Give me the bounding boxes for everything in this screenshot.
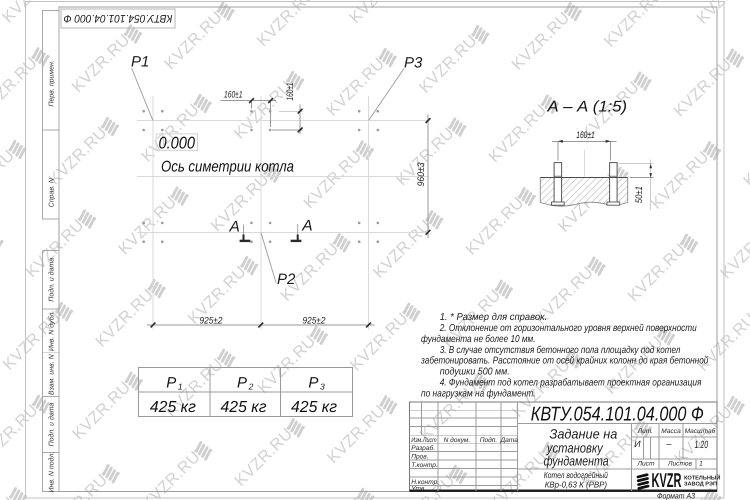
- svg-text:KVZR.RU: KVZR.RU: [139, 448, 204, 500]
- svg-text:Задание на: Задание на: [550, 426, 618, 441]
- svg-text:KVZR.RU: KVZR.RU: [231, 425, 296, 490]
- svg-text:KVZR.RU: KVZR.RU: [693, 0, 750, 28]
- svg-text:1:20: 1:20: [695, 439, 709, 451]
- svg-text:Лист: Лист: [637, 460, 655, 467]
- svg-text:А: А: [229, 218, 240, 235]
- svg-text:подушки 500 мм.: подушки 500 мм.: [440, 366, 510, 377]
- svg-text:Инв. N подл.: Инв. N подл.: [48, 451, 56, 492]
- svg-text:КВТУ.054.101.04.000 Ф: КВТУ.054.101.04.000 Ф: [531, 403, 704, 425]
- svg-text:960±3: 960±3: [416, 162, 427, 187]
- svg-text:KVZR.RU: KVZR.RU: [601, 0, 666, 51]
- svg-text:KVZR.RU: KVZR.RU: [717, 217, 750, 282]
- svg-text:KVZR.RU: KVZR.RU: [647, 148, 712, 213]
- svg-text:925±2: 925±2: [200, 315, 224, 326]
- svg-text:А – А (1:5): А – А (1:5): [546, 99, 627, 116]
- svg-text:КОТЕЛЬНЫЙ: КОТЕЛЬНЫЙ: [684, 473, 720, 481]
- svg-text:KVZR.RU: KVZR.RU: [0, 146, 18, 211]
- svg-text:KVZR.RU: KVZR.RU: [46, 471, 111, 500]
- svg-text:1: 1: [699, 460, 703, 467]
- svg-text:KVZR.RU: KVZR.RU: [462, 194, 527, 259]
- svg-text:4. Фундамент под котел разраба: 4. Фундамент под котел разрабатывает про…: [440, 377, 702, 388]
- svg-text:KVZR.RU: KVZR.RU: [670, 55, 735, 120]
- svg-text:0.000: 0.000: [159, 134, 196, 153]
- svg-text:Р: Р: [166, 374, 176, 391]
- svg-text:Пров.: Пров.: [411, 454, 429, 461]
- svg-text:KVZR.RU: KVZR.RU: [115, 193, 180, 258]
- svg-text:по нагрузкам на фундамент.: по нагрузкам на фундамент.: [421, 388, 536, 399]
- svg-text:Разраб.: Разраб.: [411, 445, 435, 452]
- svg-text:Формат А3: Формат А3: [657, 491, 695, 500]
- svg-text:Масштаб: Масштаб: [685, 428, 716, 435]
- svg-text:KVZR.RU: KVZR.RU: [508, 8, 573, 73]
- svg-text:2: 2: [248, 381, 254, 391]
- svg-text:КВр-0,63 К (РВР): КВр-0,63 К (РВР): [545, 480, 607, 490]
- svg-text:KVZR.RU: KVZR.RU: [346, 0, 411, 27]
- svg-text:А: А: [301, 218, 312, 235]
- svg-text:фундамента: фундамента: [544, 454, 609, 469]
- svg-text:KVZR.RU: KVZR.RU: [0, 54, 41, 119]
- svg-text:KVZR: KVZR: [652, 470, 682, 492]
- svg-text:1. * Размер для справок.: 1. * Размер для справок.: [440, 312, 548, 323]
- svg-text:KVZR.RU: KVZR.RU: [347, 309, 412, 374]
- svg-text:KVZR.RU: KVZR.RU: [68, 31, 133, 96]
- svg-text:Р1: Р1: [131, 54, 149, 71]
- svg-text:KVZR.RU: KVZR.RU: [254, 0, 319, 50]
- svg-text:KVZR.RU: KVZR.RU: [69, 378, 134, 443]
- svg-text:KVZR.RU: KVZR.RU: [300, 147, 365, 212]
- svg-text:Справ. N: Справ. N: [49, 177, 56, 207]
- svg-text:KVZR.RU: KVZR.RU: [0, 401, 42, 466]
- svg-text:КВТУ.054.101.04.000 Ф: КВТУ.054.101.04.000 Ф: [63, 12, 172, 24]
- svg-text:3: 3: [320, 381, 325, 391]
- svg-text:–: –: [665, 439, 672, 449]
- svg-text:3. В случае отсутствия бетонно: 3. В случае отсутствия бетонного пола пл…: [440, 345, 681, 356]
- svg-text:KVZR.RU: KVZR.RU: [485, 101, 550, 166]
- svg-text:И: И: [634, 439, 641, 449]
- svg-text:925±2: 925±2: [303, 315, 327, 326]
- svg-text:160±1: 160±1: [285, 83, 296, 101]
- svg-text:KVZR.RU: KVZR.RU: [439, 0, 504, 4]
- svg-text:Масса: Масса: [661, 428, 681, 435]
- svg-text:Р2: Р2: [277, 271, 296, 288]
- svg-text:ЗАВОД РЭП: ЗАВОД РЭП: [684, 482, 717, 488]
- svg-text:Подп. и дата: Подп. и дата: [48, 258, 56, 302]
- svg-text:50±1: 50±1: [634, 186, 645, 203]
- svg-text:Листов: Листов: [667, 460, 693, 467]
- svg-text:Подп.: Подп.: [480, 437, 498, 444]
- svg-text:Т.контр.: Т.контр.: [411, 462, 438, 469]
- svg-text:KVZR.RU: KVZR.RU: [92, 286, 157, 351]
- svg-text:160±1: 160±1: [224, 90, 243, 101]
- svg-text:Перв. примен.: Перв. примен.: [49, 60, 56, 107]
- svg-text:2. Отклонение от горизонтально: 2. Отклонение от горизонтального уровня …: [439, 323, 697, 334]
- svg-text:425 кг: 425 кг: [150, 399, 196, 416]
- svg-text:забетонировать. Расстояние от: забетонировать. Расстояние от осей крайн…: [420, 356, 709, 367]
- svg-text:Р: Р: [308, 374, 318, 391]
- svg-text:Утв.: Утв.: [410, 485, 426, 492]
- svg-text:KVZR.RU: KVZR.RU: [0, 0, 64, 26]
- svg-text:KVZR.RU: KVZR.RU: [370, 217, 435, 282]
- svg-text:KVZR.RU: KVZR.RU: [741, 472, 750, 500]
- svg-text:Взам. инв. N: Взам. инв. N: [49, 353, 56, 395]
- svg-text:Подп. и дата: Подп. и дата: [48, 402, 56, 446]
- svg-text:Инв. N дубл.: Инв. N дубл.: [48, 311, 56, 352]
- svg-text:KVZR.RU: KVZR.RU: [416, 31, 481, 96]
- svg-text:KVZR.RU: KVZR.RU: [323, 54, 388, 119]
- svg-text:KVZR.RU: KVZR.RU: [301, 494, 366, 500]
- svg-text:Котел водогрейный: Котел водогрейный: [544, 470, 608, 480]
- svg-text:Дата: Дата: [499, 437, 518, 444]
- svg-text:425 кг: 425 кг: [291, 399, 337, 416]
- svg-text:KVZR.RU: KVZR.RU: [624, 240, 689, 305]
- svg-text:KVZR.RU: KVZR.RU: [486, 448, 551, 500]
- svg-text:фундамента не более 10 мм.: фундамента не более 10 мм.: [421, 334, 536, 345]
- svg-text:425 кг: 425 кг: [221, 399, 267, 416]
- svg-text:KVZR.RU: KVZR.RU: [740, 125, 750, 190]
- svg-text:KVZR.RU: KVZR.RU: [208, 170, 273, 235]
- svg-text:Изм.Лист: Изм.Лист: [411, 437, 437, 444]
- svg-text:Р: Р: [237, 374, 247, 391]
- svg-text:Лит.: Лит.: [637, 428, 654, 435]
- svg-text:Ось симетрии котла: Ось симетрии котла: [161, 158, 294, 175]
- svg-text:1: 1: [178, 381, 183, 391]
- svg-text:160±1: 160±1: [576, 130, 595, 141]
- svg-text:N докум.: N докум.: [444, 437, 471, 444]
- svg-text:Р3: Р3: [404, 54, 423, 71]
